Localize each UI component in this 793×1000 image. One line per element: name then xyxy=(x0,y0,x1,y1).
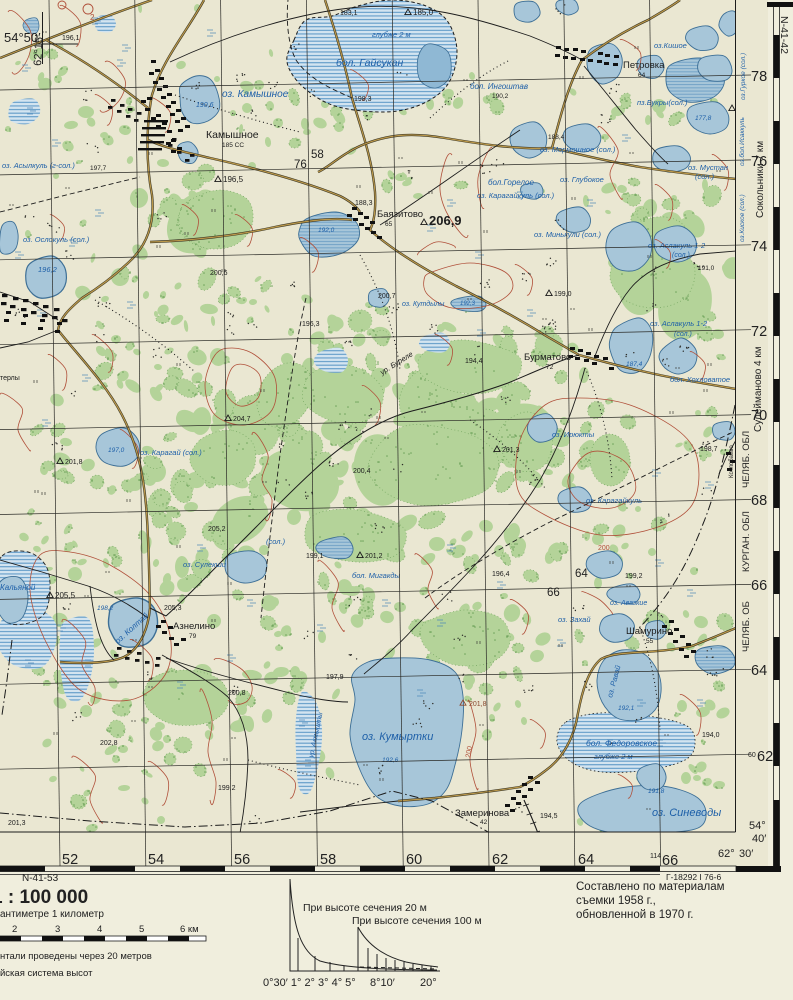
svg-text:терлы: терлы xyxy=(0,375,20,382)
svg-text:(сол.): (сол.) xyxy=(674,331,692,338)
svg-text:205,5: 205,5 xyxy=(55,591,76,600)
svg-text:201,8: 201,8 xyxy=(65,459,83,466)
svg-text:196,2: 196,2 xyxy=(38,265,58,274)
svg-text:188,4: 188,4 xyxy=(548,134,565,141)
svg-text:200,8: 200,8 xyxy=(228,690,246,697)
svg-text:Сокольники 7 км: Сокольники 7 км xyxy=(755,141,766,218)
svg-text:42: 42 xyxy=(480,819,488,826)
svg-text:бол.Горелое: бол.Горелое xyxy=(488,178,534,187)
svg-text:Бурматово: Бурматово xyxy=(524,352,571,363)
svg-text:Замеринова: Замеринова xyxy=(455,808,510,819)
svg-text:60: 60 xyxy=(748,752,756,759)
svg-text:съемки 1958 г.,: съемки 1958 г., xyxy=(576,895,656,907)
svg-text:8°10′: 8°10′ xyxy=(370,977,395,989)
svg-text:196,4: 196,4 xyxy=(492,571,510,578)
svg-text:66: 66 xyxy=(751,578,767,594)
svg-text:74: 74 xyxy=(751,239,767,255)
svg-text:72: 72 xyxy=(751,324,767,340)
svg-text:205,3: 205,3 xyxy=(164,605,182,612)
svg-text:При высоте сечения 20 м: При высоте сечения 20 м xyxy=(303,902,427,914)
svg-text:192,1: 192,1 xyxy=(618,705,635,712)
svg-text:200: 200 xyxy=(598,545,610,552)
svg-text:оз. Карагай (сол.): оз. Карагай (сол.) xyxy=(140,448,202,457)
svg-text:бол. Хохловатое: бол. Хохловатое xyxy=(670,375,730,384)
svg-text:ЧЕЛЯБ. ОБ: ЧЕЛЯБ. ОБ xyxy=(741,601,752,652)
svg-text:оз.бол.Исаккуль: оз.бол.Исаккуль xyxy=(738,117,746,166)
svg-text:оз. Минькули (сол.): оз. Минькули (сол.) xyxy=(534,230,601,239)
svg-text:200,4: 200,4 xyxy=(353,468,371,475)
svg-text:191,0: 191,0 xyxy=(698,265,715,272)
svg-text:оз. Ослокуль (сол.): оз. Ослокуль (сол.) xyxy=(23,235,90,244)
svg-text:оз. Аслакуль 1-2: оз. Аслакуль 1-2 xyxy=(650,319,708,328)
svg-text:Азнелино: Азнелино xyxy=(173,621,215,632)
svg-text:N-41-42: N-41-42 xyxy=(778,16,790,54)
svg-text:201,3: 201,3 xyxy=(502,447,520,454)
svg-text:оз. Аслакуль 1-2: оз. Аслакуль 1-2 xyxy=(648,241,706,250)
svg-text:40′: 40′ xyxy=(752,833,766,845)
svg-text:64: 64 xyxy=(638,72,646,79)
svg-text:60: 60 xyxy=(406,852,422,868)
svg-text:Петровка: Петровка xyxy=(623,60,665,71)
svg-text:оз. Авазкие: оз. Авазкие xyxy=(610,600,647,607)
svg-text:192,3: 192,3 xyxy=(460,301,476,307)
svg-text:Котлобаево: Котлобаево xyxy=(729,445,735,478)
svg-text:202,8: 202,8 xyxy=(100,740,118,747)
svg-text:оз.Гуркое (сол.): оз.Гуркое (сол.) xyxy=(740,53,747,100)
svg-text:оз. Кутдылы: оз. Кутдылы xyxy=(402,300,445,308)
svg-text:оз. Сулекши: оз. Сулекши xyxy=(183,560,227,569)
svg-text:При высоте сечения 100 м: При высоте сечения 100 м xyxy=(352,915,482,927)
svg-text:(сол.): (сол.) xyxy=(672,252,690,259)
svg-text:62°: 62° xyxy=(718,848,735,860)
svg-text:20°: 20° xyxy=(420,977,437,989)
svg-text:187,4: 187,4 xyxy=(626,361,643,368)
svg-text:198,3: 198,3 xyxy=(354,96,372,103)
svg-text:205,2: 205,2 xyxy=(208,526,226,533)
svg-text:204,7: 204,7 xyxy=(233,416,251,423)
svg-text:6 км: 6 км xyxy=(180,924,199,935)
svg-text:Камышное: Камышное xyxy=(206,129,259,141)
svg-text:оз. Асылкуль (г-сол.): оз. Асылкуль (г-сол.) xyxy=(2,161,75,170)
svg-text:191,8: 191,8 xyxy=(648,788,665,795)
svg-text:оз. Карагайкуль (сол.): оз. Карагайкуль (сол.) xyxy=(477,191,555,200)
svg-text:65: 65 xyxy=(385,221,393,228)
svg-text:глубже 2 м: глубже 2 м xyxy=(372,30,411,39)
svg-text:Сулейманово 4 км: Сулейманово 4 км xyxy=(753,346,764,432)
svg-text:оз. Глубокое: оз. Глубокое xyxy=(560,175,604,184)
svg-text:оз. Ирюкты: оз. Ирюкты xyxy=(552,430,595,439)
svg-text:198,7: 198,7 xyxy=(700,446,718,453)
svg-text:антиметре 1 километр: антиметре 1 километр xyxy=(0,909,104,920)
svg-text:192,0: 192,0 xyxy=(318,227,335,234)
svg-text:оз. Мустан: оз. Мустан xyxy=(688,163,728,172)
svg-text:нтали проведены через 20 ме: нтали проведены через 20 метров xyxy=(0,951,152,962)
svg-text:52: 52 xyxy=(62,852,78,868)
svg-text:206,9: 206,9 xyxy=(429,213,462,228)
svg-text:197,7: 197,7 xyxy=(90,165,107,172)
svg-text:66: 66 xyxy=(547,587,560,599)
svg-text:55: 55 xyxy=(646,638,654,645)
svg-text:4: 4 xyxy=(97,924,102,935)
svg-text:198,2: 198,2 xyxy=(97,605,114,612)
svg-text:79: 79 xyxy=(189,633,197,640)
svg-text:N-41-53: N-41-53 xyxy=(22,873,59,884)
svg-text:оз. Синеводы: оз. Синеводы xyxy=(652,807,721,819)
svg-text:68: 68 xyxy=(751,493,767,509)
svg-text:бол. Мигакды: бол. Мигакды xyxy=(352,571,401,580)
svg-text:58: 58 xyxy=(311,149,324,161)
svg-text:Баязитово: Баязитово xyxy=(377,209,423,220)
svg-text:оз. Захай: оз. Захай xyxy=(558,615,591,624)
svg-text:78: 78 xyxy=(751,69,767,85)
svg-text:оз.Кишое: оз.Кишое xyxy=(654,41,687,50)
svg-text:185,0: 185,0 xyxy=(413,8,434,17)
svg-text:200,6: 200,6 xyxy=(210,270,228,277)
svg-text:(сол.): (сол.) xyxy=(695,172,715,181)
svg-text:62°15′: 62°15′ xyxy=(32,35,46,67)
svg-text:194,5: 194,5 xyxy=(540,813,558,820)
svg-text:190,2: 190,2 xyxy=(492,93,509,100)
svg-text:(сол.): (сол.) xyxy=(266,537,286,546)
svg-text:56: 56 xyxy=(234,852,250,868)
svg-text:Составлено по материалам: Составлено по материалам xyxy=(576,881,725,893)
svg-text:199,2: 199,2 xyxy=(625,573,643,580)
svg-text:62: 62 xyxy=(492,852,508,868)
svg-text:114: 114 xyxy=(650,853,661,860)
svg-text:оз. Кумыртки: оз. Кумыртки xyxy=(362,731,433,743)
svg-text:200,7: 200,7 xyxy=(378,293,396,300)
svg-text:196,1: 196,1 xyxy=(62,35,80,42)
svg-text:ЧЕЛЯБ. ОБЛ: ЧЕЛЯБ. ОБЛ xyxy=(741,431,752,488)
svg-text:оз.Киское (сол.): оз.Киское (сол.) xyxy=(739,194,746,242)
svg-text:192,6: 192,6 xyxy=(382,757,399,764)
svg-text:185 СС: 185 СС xyxy=(222,142,244,149)
svg-text:196,5: 196,5 xyxy=(223,175,244,184)
svg-text:58: 58 xyxy=(320,852,336,868)
svg-text:199,1: 199,1 xyxy=(306,553,324,560)
svg-text:оз. Мормошное (сол.): оз. Мормошное (сол.) xyxy=(540,145,616,154)
svg-text:Кальяной: Кальяной xyxy=(0,583,36,592)
svg-text:72: 72 xyxy=(546,364,554,371)
svg-text:188,3: 188,3 xyxy=(355,200,373,207)
svg-text:201,3: 201,3 xyxy=(8,820,26,827)
svg-text:194,0: 194,0 xyxy=(702,732,720,739)
svg-text:197,0: 197,0 xyxy=(108,447,125,454)
svg-text:2: 2 xyxy=(12,924,17,935)
svg-text:183,1: 183,1 xyxy=(340,10,358,17)
svg-text:64: 64 xyxy=(578,852,594,868)
svg-text:3: 3 xyxy=(55,924,60,935)
svg-text:64: 64 xyxy=(575,568,588,580)
svg-text:64: 64 xyxy=(751,663,767,679)
svg-text:54°: 54° xyxy=(749,820,766,832)
svg-text:54: 54 xyxy=(148,852,164,868)
svg-text:62: 62 xyxy=(757,749,773,765)
svg-text:0°30′ 1° 2° 3° 4° 5°: 0°30′ 1° 2° 3° 4° 5° xyxy=(263,977,356,989)
svg-text:КУРГАН. ОБЛ: КУРГАН. ОБЛ xyxy=(741,511,752,572)
svg-text:199,2: 199,2 xyxy=(218,785,236,792)
svg-text:оз. Камышное: оз. Камышное xyxy=(222,89,289,100)
svg-text:5: 5 xyxy=(139,924,144,935)
svg-text:обновленной в 1970 г.: обновленной в 1970 г. xyxy=(576,909,693,921)
svg-text:йская система высот: йская система высот xyxy=(0,968,93,979)
svg-text:30′: 30′ xyxy=(739,848,753,860)
svg-text:194,4: 194,4 xyxy=(465,358,483,365)
svg-text:бол. Федоровское: бол. Федоровское xyxy=(586,738,657,748)
svg-text:199,0: 199,0 xyxy=(554,291,572,298)
svg-text:1 : 100 000: 1 : 100 000 xyxy=(0,887,88,908)
svg-text:201,2: 201,2 xyxy=(365,553,383,560)
svg-text:201,8: 201,8 xyxy=(469,701,487,708)
svg-text:177,8: 177,8 xyxy=(695,115,712,122)
svg-text:оз. Карагайкуль: оз. Карагайкуль xyxy=(586,496,642,505)
svg-text:пз.Букры(сол.): пз.Букры(сол.) xyxy=(637,98,688,107)
svg-text:190,6: 190,6 xyxy=(196,102,214,109)
svg-text:бол. Ингоштав: бол. Ингоштав xyxy=(470,82,528,91)
svg-text:Шамурино: Шамурино xyxy=(626,626,672,637)
